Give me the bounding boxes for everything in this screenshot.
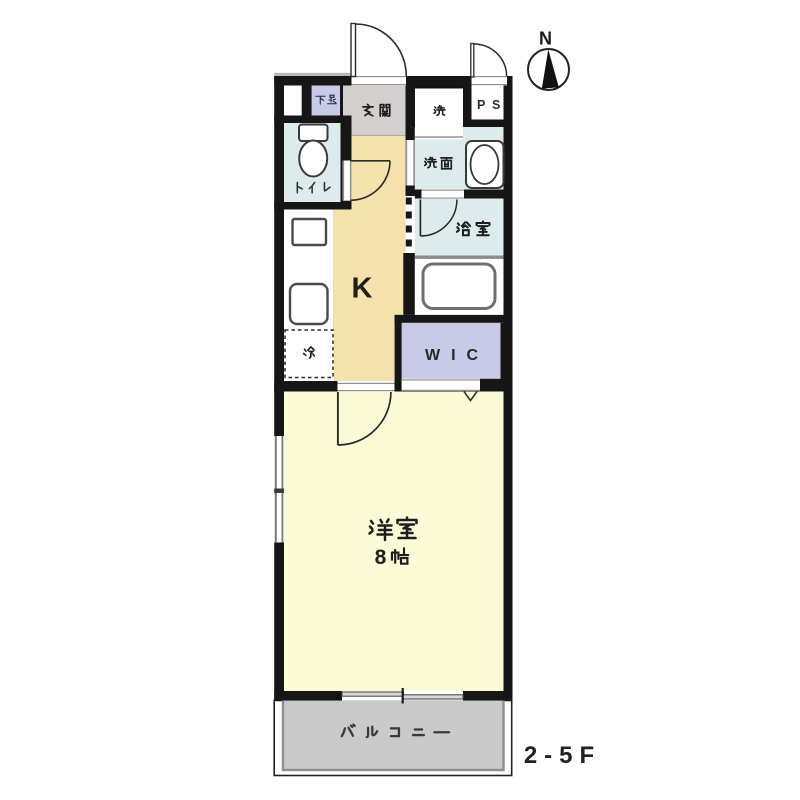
svg-text:N: N [539, 29, 552, 49]
svg-text:WIC: WIC [425, 347, 489, 364]
svg-text:2-5F: 2-5F [524, 742, 601, 769]
svg-text:8: 8 [375, 546, 387, 569]
svg-text:PS: PS [477, 98, 507, 112]
svg-text:K: K [352, 273, 373, 305]
